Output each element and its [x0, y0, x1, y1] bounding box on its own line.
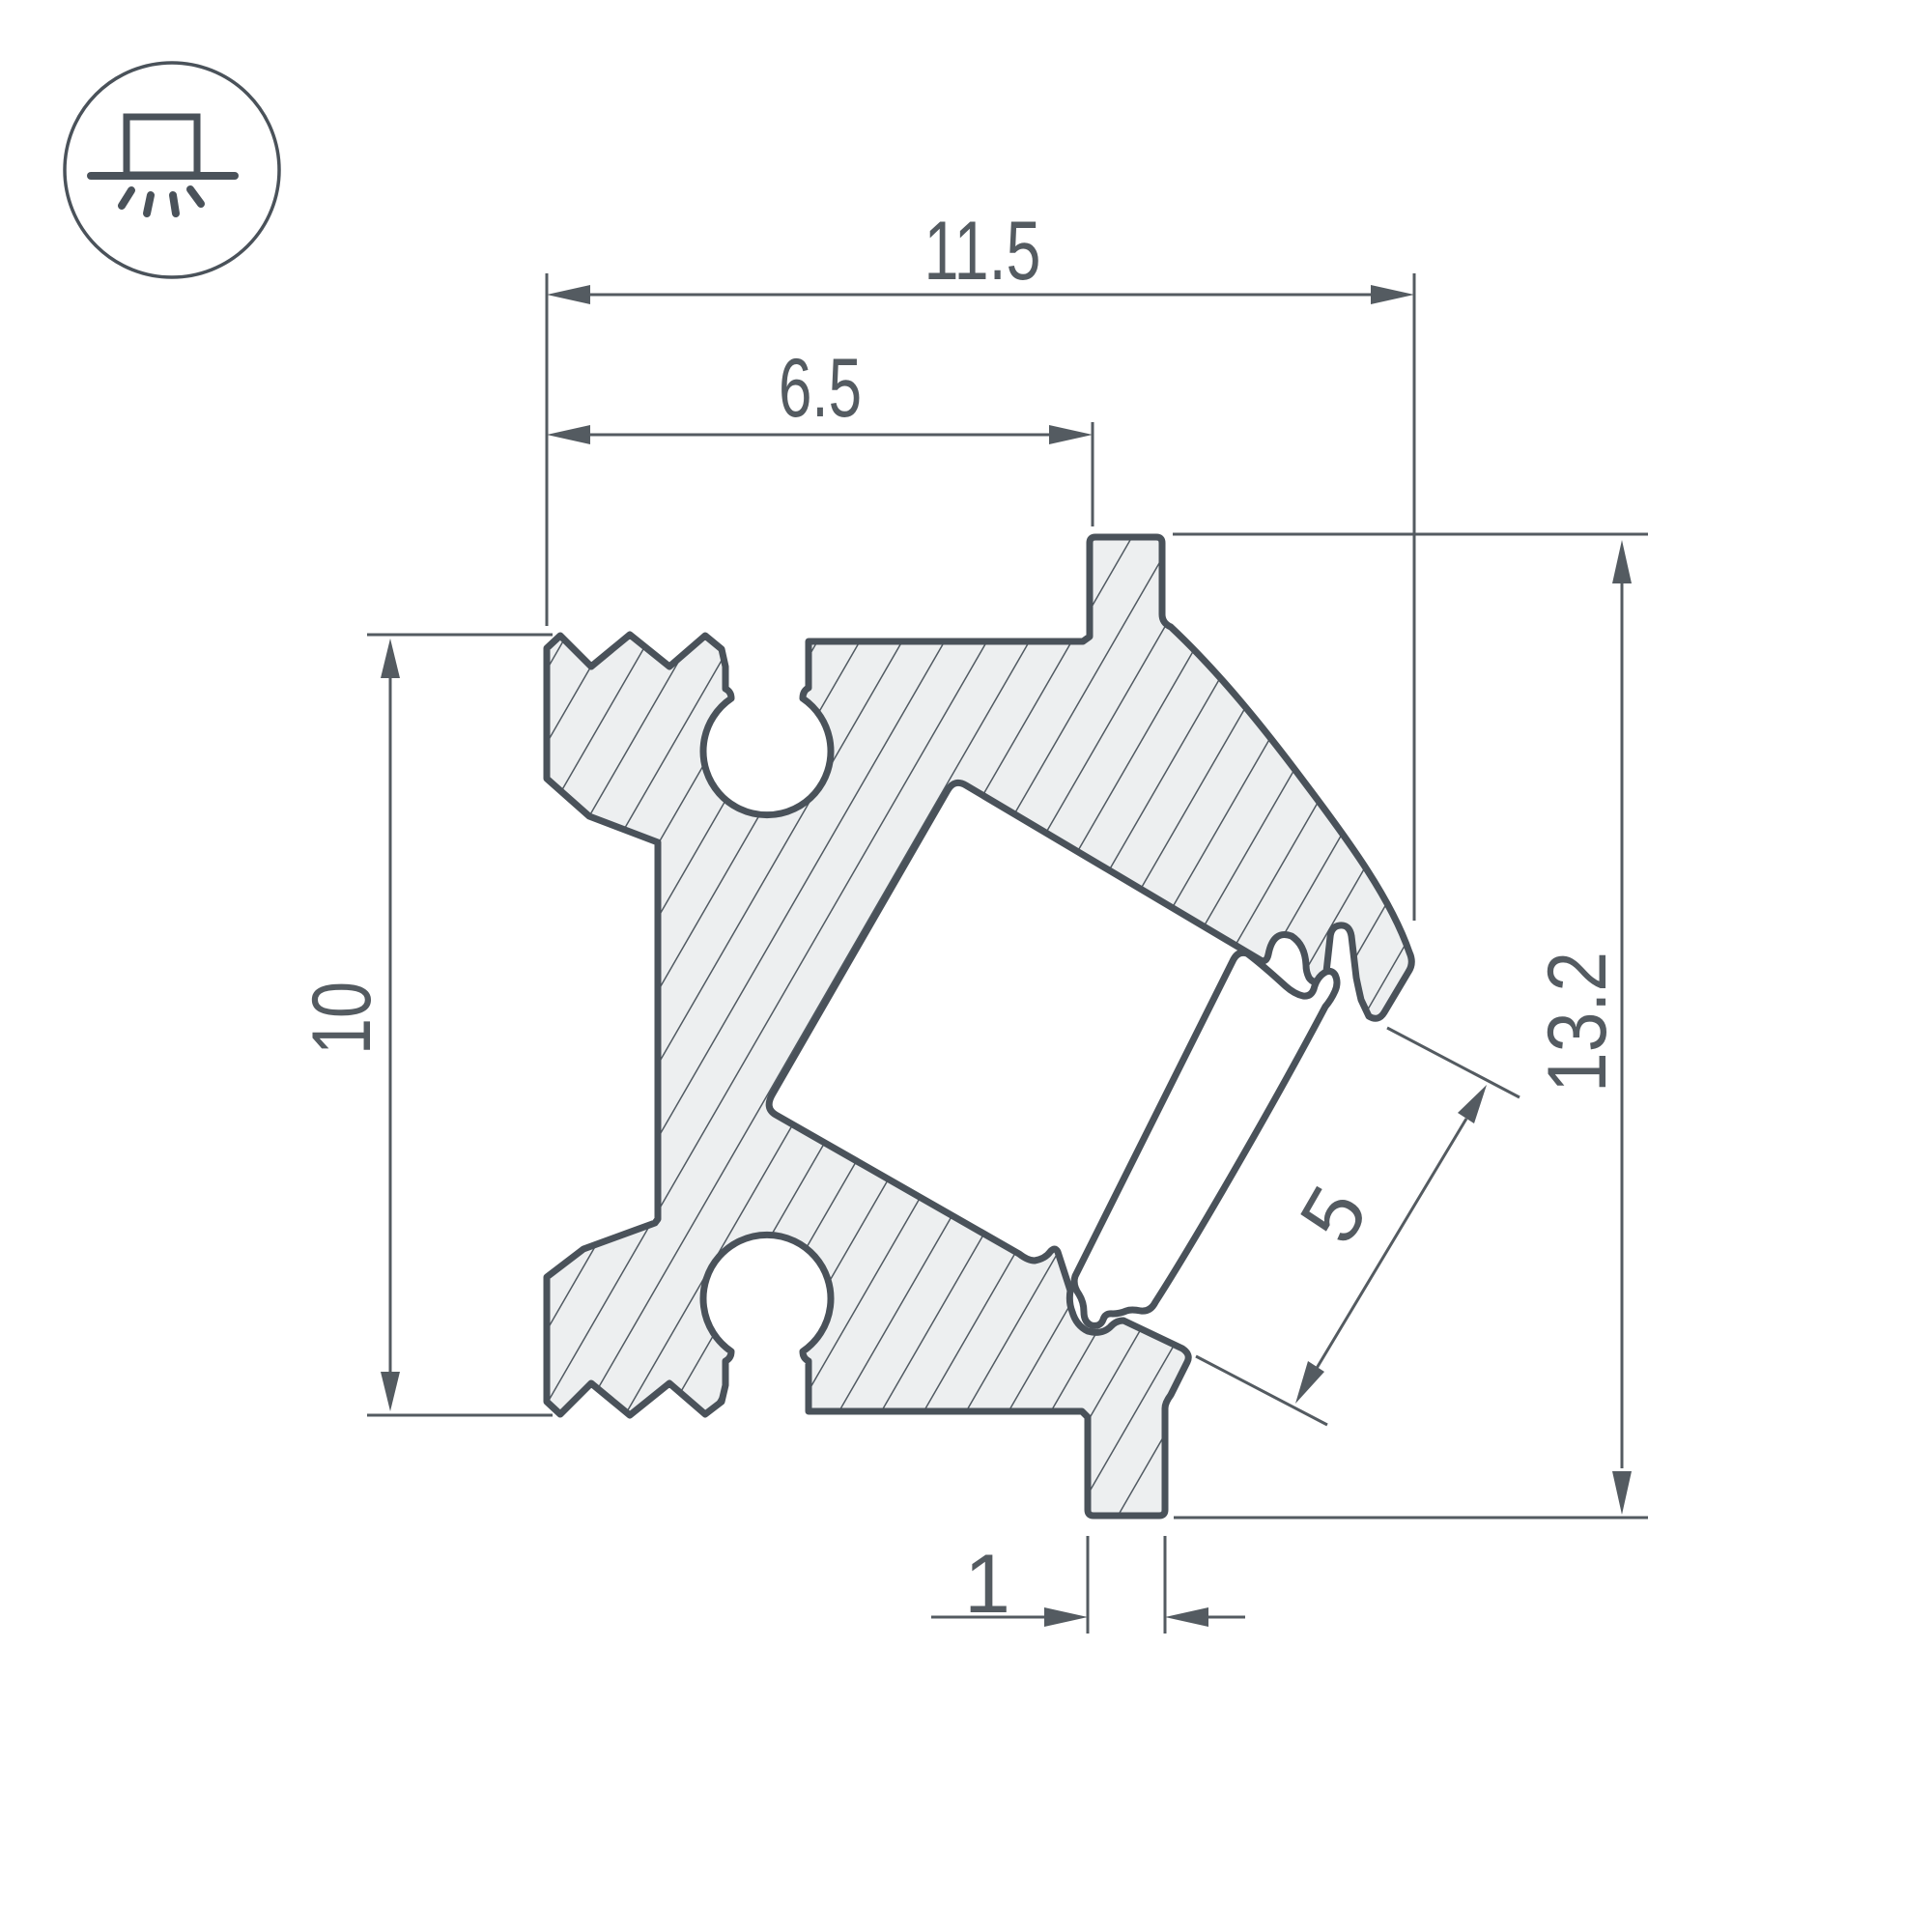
- svg-text:10: 10: [296, 981, 388, 1055]
- svg-text:1: 1: [964, 1538, 1010, 1631]
- svg-text:6.5: 6.5: [779, 342, 862, 435]
- svg-text:11.5: 11.5: [924, 205, 1041, 298]
- svg-text:13.2: 13.2: [1531, 952, 1624, 1093]
